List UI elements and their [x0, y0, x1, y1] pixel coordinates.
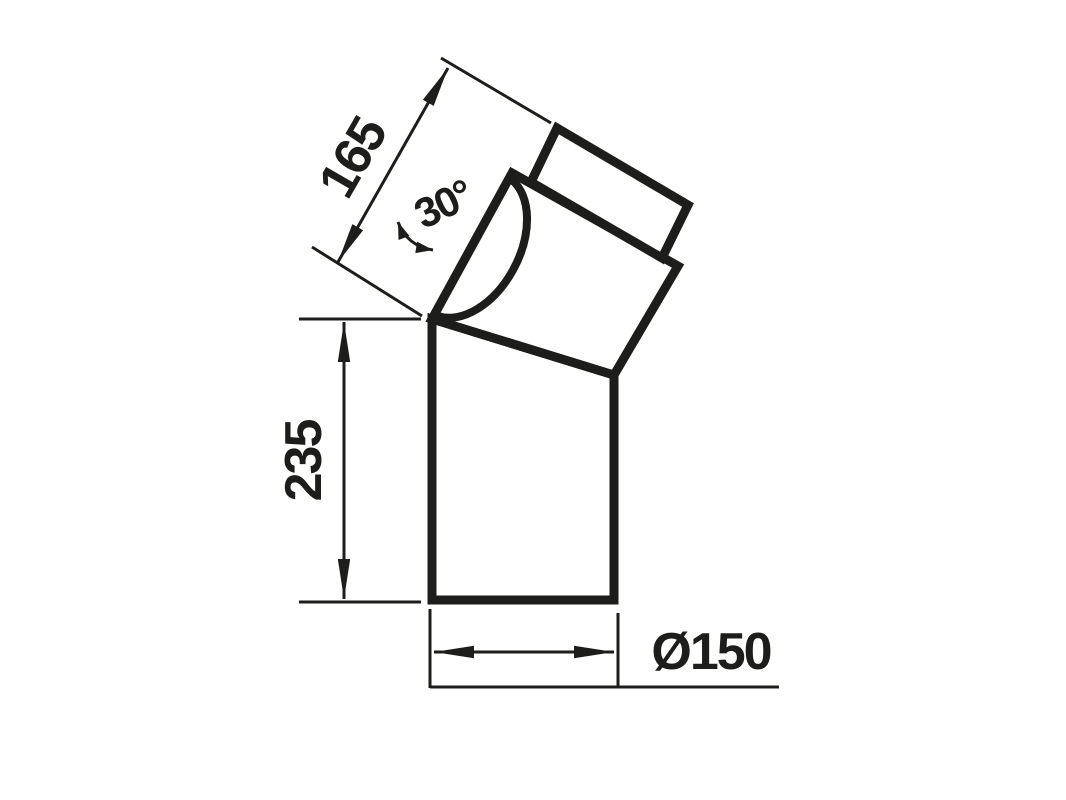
label-upper-length: 165 — [308, 108, 399, 208]
dim-165-extension-bottom — [312, 247, 422, 316]
label-diameter: Ø150 — [651, 623, 770, 681]
label-bend-angle: 30° — [407, 170, 479, 238]
label-lower-length: 235 — [275, 420, 333, 502]
dim-165-extension-top — [441, 58, 551, 123]
drawing-canvas: 165 30° 235 Ø150 — [0, 0, 1066, 800]
pipe-elbow-diagram: 165 30° 235 Ø150 — [0, 0, 1066, 800]
